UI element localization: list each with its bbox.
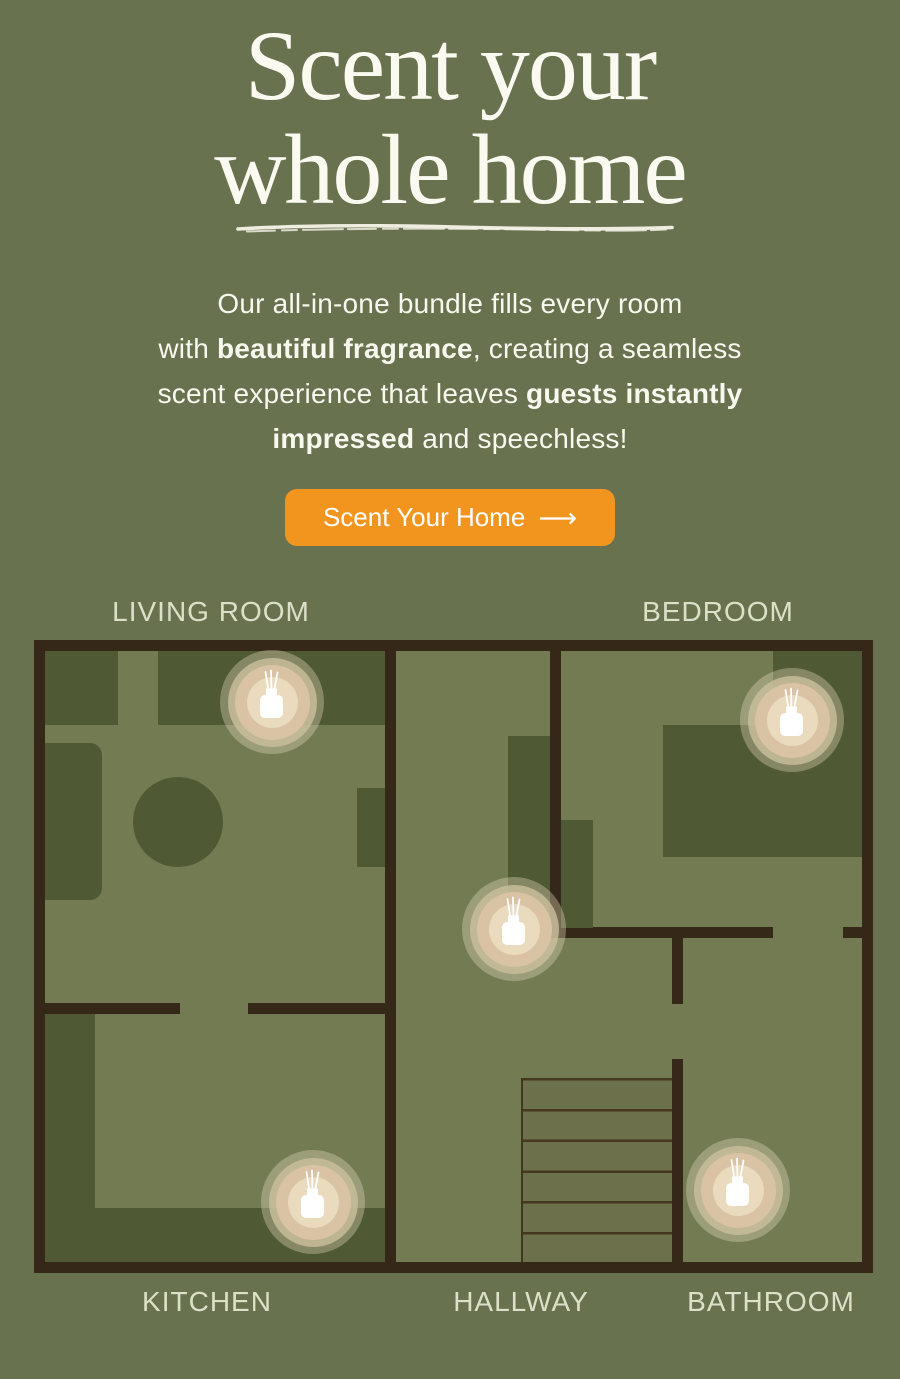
wall-kitchen-top-left (34, 1003, 180, 1014)
living-room-cabinet (357, 788, 385, 867)
reed-diffuser-icon (772, 684, 812, 740)
arrow-right-icon: ⟶ (538, 505, 577, 532)
room-label-living-room: LIVING ROOM (36, 596, 386, 628)
room-label-kitchen: KITCHEN (32, 1286, 382, 1318)
diffuser-marker-hallway (462, 877, 566, 981)
diffuser-marker-kitchen (261, 1150, 365, 1254)
reed-diffuser-icon (293, 1166, 333, 1222)
wall-outer-right (862, 640, 873, 1273)
room-label-bedroom: BEDROOM (543, 596, 893, 628)
page-title: Scent your whole home (0, 14, 900, 222)
paragraph-line-3: scent experience that leaves guests inst… (0, 371, 900, 416)
room-label-bathroom: BATHROOM (596, 1286, 900, 1318)
wall-outer-left (34, 640, 45, 1273)
page-title-line2: whole home (0, 118, 900, 222)
email-section: Scent your whole home Our all-in-one bun… (0, 0, 900, 1379)
page-title-line1: Scent your (0, 14, 900, 118)
wall-bathroom-left-lower (672, 1059, 683, 1263)
reed-diffuser-icon (494, 893, 534, 949)
living-room-bench (45, 743, 102, 900)
reed-diffuser-icon (252, 666, 292, 722)
living-room-coffee-table (133, 777, 223, 867)
wall-kitchen-top-right (248, 1003, 396, 1014)
wall-bathroom-left-upper (672, 938, 683, 1004)
reed-diffuser-icon (718, 1154, 758, 1210)
diffuser-marker-bedroom (740, 668, 844, 772)
wall-bedroom-bottom (550, 927, 773, 938)
intro-paragraph: Our all-in-one bundle fills every room w… (0, 281, 900, 461)
living-room-sofa-left (45, 651, 118, 725)
wall-outer-top (34, 640, 873, 651)
paragraph-line-4: impressed and speechless! (0, 416, 900, 461)
paragraph-line-2: with beautiful fragrance, creating a sea… (0, 326, 900, 371)
staircase (521, 1078, 672, 1263)
hand-drawn-underline (235, 221, 675, 235)
scent-your-home-button[interactable]: Scent Your Home ⟶ (285, 489, 615, 546)
wall-hallway-left (385, 640, 396, 1273)
diffuser-marker-living-room (220, 650, 324, 754)
cta-label: Scent Your Home (323, 502, 525, 533)
wall-bedroom-bottom-right (843, 927, 873, 938)
diffuser-marker-bathroom (686, 1138, 790, 1242)
wall-outer-bottom (34, 1262, 873, 1273)
paragraph-line-1: Our all-in-one bundle fills every room (0, 281, 900, 326)
